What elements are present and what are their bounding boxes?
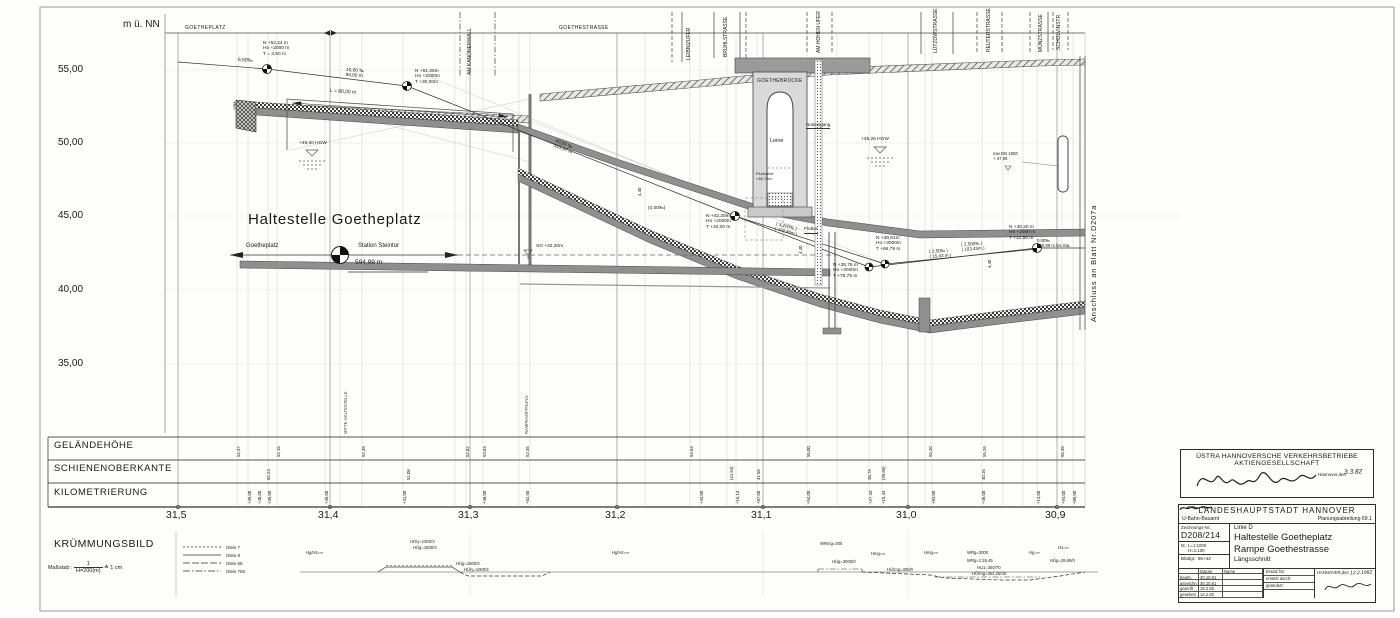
legend-gleis-56: Gleis 56 [226,561,243,566]
kr-17: H1=∞ [1058,546,1069,551]
slope-000-mid: (0,00‰) [648,206,665,211]
legend-gleis-756: Gleis 756 [226,569,245,574]
elevation-40: 40,00 [58,284,83,295]
tick-kilometrierung: +45,00 [248,491,253,504]
drawing-number: D208/214 [1181,530,1227,540]
street-goethestrasse: GOETHESTRASSE [559,25,609,31]
elevation-unit: m ü. NN [123,19,160,30]
so-level: SO +42,20m [536,244,563,249]
massstab-suffix: ≙ 1 cm [104,565,122,571]
slope-4000: 40,00 ‰313,97 m [552,139,575,156]
elevation-35: 35,00 [58,358,83,369]
kr-1: HÜ/y=1000/3 [410,540,435,545]
ersatz-column: Ersatz für: ersetzt durch: geändert: [1264,569,1315,598]
height-440-a: 4,40 [638,188,643,196]
street-muenzstrasse: MÜNZSTRASSE [1039,14,1045,52]
tick-kilometrierung: +13,00 [1037,491,1042,504]
gradient-point-4: N +38,91mHo +3000mT +66,79 m [876,236,901,252]
tick-gelaendehoehe: 53,04 [483,446,488,457]
kr-2: HÜg=1500/3 [413,546,437,551]
hannover-city: HANNOVER,den [1317,570,1349,575]
tick-gelaendehoehe: 55,35 [1061,446,1066,457]
drawing-sheet: m ü. NN 55,00 50,00 45,00 40,00 35,00 GO… [0,0,1400,618]
street-scholvinstr: SCHOLVINSTR. [1057,13,1063,50]
tick-schienenoberkante: (39,65) [882,466,887,480]
ersatz-label: Ersatz für: [1264,569,1314,576]
elevation-45: 45,00 [58,210,83,221]
tick-gelaendehoehe: 55,20 [929,446,934,457]
hgw-left: +49,00 HGW [299,141,327,146]
km-31-0: 31,0 [896,509,916,521]
legend-gleis-8: Gleis 8 [226,553,240,558]
geaendert-label: geändert: [1264,583,1314,590]
scale-l: L=1:1000 [1188,543,1206,548]
tick-schienenoberkante: 38,79 [868,469,873,480]
row-gesehen: gesehen [1179,592,1199,598]
kr-9: Hmg=∞ [871,552,885,557]
gradient-point-2: N +51,30mHo +2000mT +30,00m [415,69,440,85]
line-label: Linie D [1234,525,1371,531]
connection-note: Anschluss an Blatt Nr.D207a [1089,205,1098,322]
tick-kilometrierung: +40,00 [258,491,263,504]
tick-kilometrierung: +87,00 [757,491,762,504]
scale-cell: M.: L=1:1000 H=1:100 [1179,542,1229,555]
gradient-point-6: N +40,20 mHo +2000 mT +12,50 m [1009,225,1035,241]
kruemmung-massstab: Maßstab : 1 H=200(m) ≙ 1 cm [48,561,122,574]
tick-kilometrierung: +46,00 [982,491,987,504]
approval-signature [1321,578,1373,594]
tick-gelaendehoehe: 52,15 [277,446,282,457]
street-luetzowstrasse: LÜTZOWSTRASSE [934,9,940,53]
city-dept: Planungsabteilung 69.1 [1318,516,1372,522]
approval-table: DatumName bearb.30.10.81 gezeichn.30.10.… [1179,569,1264,598]
gradient-point-1: N +52,24 mHo +2000 mT = 3,50 m [263,41,289,57]
tick-kilometrierung: +41,00 [403,491,408,504]
ustra-line1: ÜSTRA HANNOVERSCHE VERKEHRSBETRIEBE [1181,453,1373,460]
hannover-cell: HANNOVER,den 12.2.1982 [1315,569,1375,598]
ustra-signature [1189,464,1319,494]
river-label: Leine [770,138,783,144]
notausgang-label: Notausgang [806,122,830,129]
scale-h: H=1:100 [1188,548,1206,553]
massstab-fraction-top: 1 [74,561,103,568]
tick-gelaendehoehe: 55,00 [807,446,812,457]
station-length: 594,99 m [355,259,382,266]
kr-13: WRg=1:26,45 [967,559,993,564]
project-title-2: Rampe Goethestrasse [1234,544,1371,555]
km-31-2: 31,2 [605,509,625,521]
tick-schienenoberkante: 52,24 [267,469,272,480]
km-31-4: 31,4 [318,509,338,521]
project-title-3: Längsschnitt [1234,556,1371,563]
tick-kilometrierung: +15,43 [882,491,887,504]
tick-gelaendehoehe: 54,64 [690,446,695,457]
km-31-3: 31,3 [458,509,478,521]
date-gesehen: 12.2.82 [1199,592,1223,598]
sig-gesehen [1223,592,1263,598]
street-am-kanonenwall: AM KANONENWALL [468,28,474,75]
tick-kilometrierung: +16,13 [736,491,741,504]
street-bruehlstrasse: BRÜHLSTRASSE [724,17,730,57]
tick-gelaendehoehe: 52,37 [237,446,242,457]
tick-kilometrierung: +44,00 [700,491,705,504]
km-30-9: 30,9 [1045,509,1065,521]
slope-2500: ( 2,500‰ )( 103,43m ) [961,240,985,252]
tick-kilometrierung: +83,00 [932,491,937,504]
tick-kilometrierung: +54,00 [807,491,812,504]
tick-schienenoberkante: 40,16 [982,469,987,480]
kr-16: Hg=∞ [1029,551,1040,556]
ustra-title-block: ÜSTRA HANNOVERSCHE VERKEHRSBETRIEBE AKTI… [1180,449,1374,498]
station-title: Haltestelle Goetheplatz [248,211,422,228]
kr-11: Hmg=∞ [924,551,938,556]
kr-10: HÜ/mg=300/0 [887,568,913,573]
height-440-c: 4,40 [988,260,993,268]
gradient-point-5: N +38,76 mHo +3000mT +76,75 m [833,263,858,279]
station-dir-left: Goetheplatz [246,243,278,249]
project-title-1: Haltestelle Goetheplatz [1234,532,1371,543]
row-kilometrierung: KILOMETRIERUNG [54,487,148,498]
row-schienenoberkante: SCHIENENOBERKANTE [54,463,172,474]
tick-kilometrierung: +85,00 [1073,491,1078,504]
kr-4: HÜ/y=1000/3 [464,568,489,573]
hgw-right: +49,25 HGW [861,137,889,142]
row-gelaendehoehe: GELÄNDEHÖHE [54,440,133,451]
street-reuterstrasse: REUTERSTRASSE [987,8,993,52]
tick-gelaendehoehe: 52,48 [362,446,367,457]
pipe-label: mw DN 1800+ 47,95 [993,152,1018,162]
station-dir-right: Station Steintor [358,243,399,249]
tick-gelaendehoehe: 55,26 [983,446,988,457]
ersetzt-label: ersetzt durch: [1264,576,1314,583]
kr-8: HÜg=3000/0 [832,560,856,565]
rampenoeffnung-label: RAMPENÖFFNUNG [524,395,529,434]
kr-3: HÜg=1500/3 [456,562,480,567]
street-leibnizufer: LEIBNIZUFER [687,27,693,60]
slope-250: ( 2,50‰ )( 15,43 m ) [929,247,951,259]
city-title-block: LANDESHAUPTSTADT HANNOVER U-Bahn-Bauamt … [1178,504,1376,603]
tick-kilometrierung: +94,00 [1062,491,1067,504]
slope-3200: ( 3,200‰ )( 102,80m ) [774,221,799,237]
elevation-55: 55,00 [58,64,83,75]
slope-000-right: 0,00‰120,89 m bis Sta. [1037,239,1070,249]
tick-kilometrierung: +45,00 [325,491,330,504]
kr-7: WRmg=300 [820,542,842,547]
ustra-date: 3.3.82 [1344,468,1362,476]
tick-gelaendehoehe: 52,35 [526,446,531,457]
street-goetheplatz: GOETHEPLATZ [185,25,226,31]
height-440-b: 4,40 [799,246,804,254]
tick-kilometrierung: +35,00 [268,491,273,504]
tick-schienenoberkante: 51,08 [407,469,412,480]
slope-650: 6,50‰ [238,58,253,64]
blatt-size: Blattgr.: 95+42 [1179,555,1229,562]
km-31-1: 31,1 [751,509,771,521]
tick-gelaendehoehe: 52,82 [466,446,471,457]
flusssohle-label: Flußsohle=48,70m [756,172,774,182]
km-31-5: 31,5 [166,509,186,521]
dim-l80: L = 80,00 m [330,89,357,96]
legend-gleis-7: Gleis 7 [226,545,240,550]
elevation-50: 50,00 [58,137,83,148]
fluttor-label: Fluttor [804,227,818,234]
mitte-haltestelle-label: MITTE HALTESTELLE [343,391,348,434]
kr-14: HU1=350/70 [977,566,1001,571]
kr-18: HÜg=29,65/0 [1050,559,1075,564]
slope-1000: 10,00 ‰94,00 m [345,68,364,80]
tick-kilometrierung: +27,43 [869,491,874,504]
massstab-fraction-bottom: H=200(m) [74,568,103,574]
bridge-name: GOETHEBRÜCKE [757,78,803,84]
kr-15: HÜ/mg=354,25/30 [972,572,1006,577]
tick-schienenoberkante: 41,55 [757,469,762,480]
tick-kilometrierung: +48,00 [483,491,488,504]
kr-6: Hg/Hz=∞ [612,551,629,556]
tick-schienenoberkante: (41,94) [730,466,735,480]
hannover-date: 12.2.1982 [1350,569,1372,576]
city-office: U-Bahn-Bauamt [1182,516,1219,522]
gradient-point-3: N +42,20mHo +2000mT +32,00 m [706,214,731,230]
kruemmung-title: KRÜMMUNGSBILD [54,538,154,550]
kr-5: Hg/Hz=∞ [306,551,323,556]
street-am-hohen-ufer: AM HOHEN UFER [817,11,823,53]
ustra-city: Hannover,den [1318,472,1346,477]
tick-kilometrierung: +52,50 [526,491,531,504]
kr-12: WRg=3000 [967,551,988,556]
